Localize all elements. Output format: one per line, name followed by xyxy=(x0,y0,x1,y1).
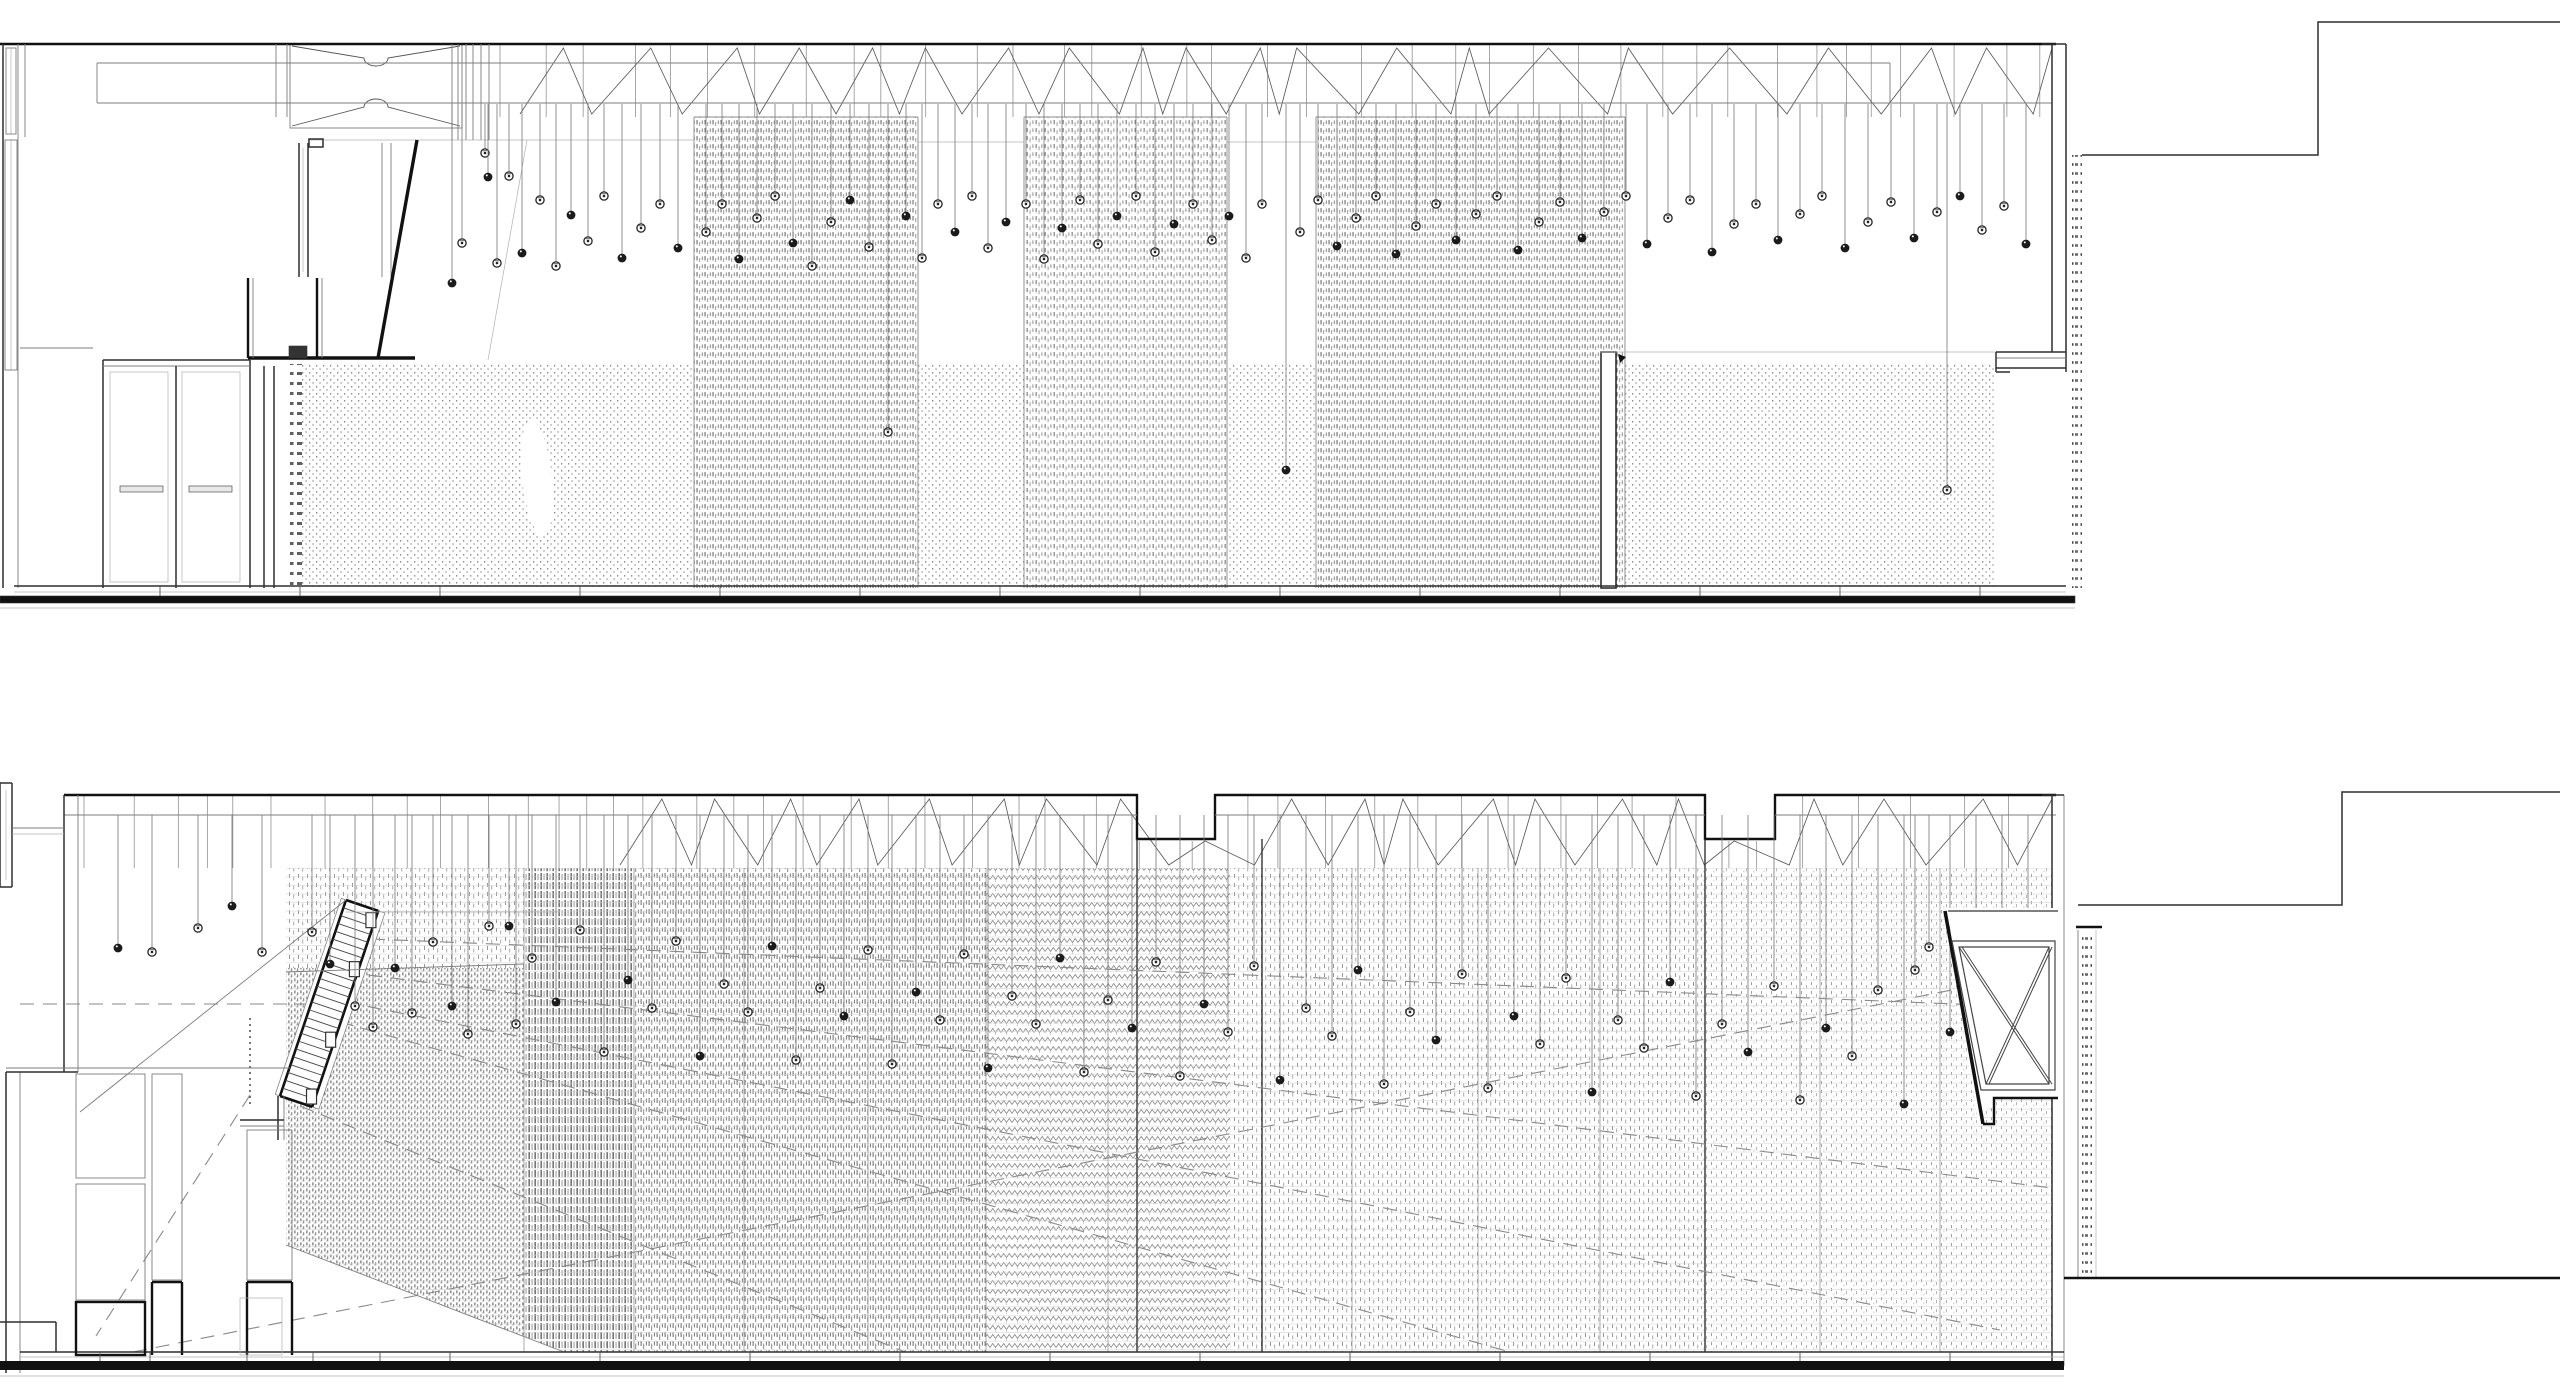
drawing-sheet xyxy=(0,0,2560,1397)
upper-duct-bowtie xyxy=(290,44,462,128)
upper-curtain-panels xyxy=(694,117,1626,588)
upper-right-annex xyxy=(2072,22,2560,588)
lower-right-annex xyxy=(2078,792,2560,1278)
upper-long-section xyxy=(0,22,2560,608)
upper-roof-truss xyxy=(500,44,2052,117)
lower-textile-wall xyxy=(286,839,2052,1352)
lower-floor-joints xyxy=(100,1352,1950,1361)
section-drawing-canvas xyxy=(0,0,2560,1397)
lower-long-section xyxy=(0,783,2560,1376)
